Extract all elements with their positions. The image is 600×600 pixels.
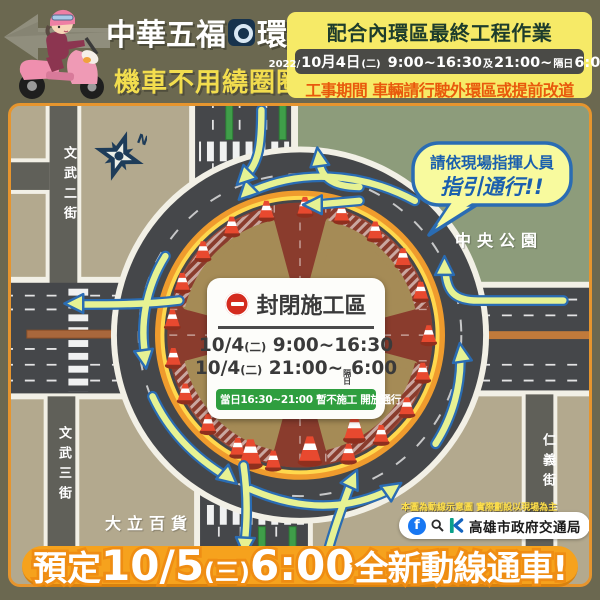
kaohsiung-k-logo-icon bbox=[449, 518, 464, 533]
sched2-date: 10/4 bbox=[195, 358, 240, 379]
bubble-line2: 指引通行!! bbox=[440, 175, 543, 199]
scooter-rider-illustration bbox=[2, 2, 114, 102]
infographic-root: 中華五福環 機車不用繞圈圈 配合內環區最終工程作業 2022/ 10月4日 (二… bbox=[0, 0, 600, 600]
notice-day: (二) bbox=[361, 55, 380, 70]
sched2-time-end: 6:00 bbox=[351, 358, 397, 379]
roundabout-glyph-icon bbox=[228, 19, 255, 46]
banner-post: 全新動線通車! bbox=[354, 549, 567, 589]
reopen-banner: 預定10/5(三)6:00全新動線通車! bbox=[22, 546, 578, 587]
park-label: 中央公園 bbox=[455, 227, 543, 251]
compass-icon: N bbox=[91, 128, 147, 184]
notice-time3: 6:00 bbox=[574, 55, 600, 71]
banner-time: 6:00 bbox=[250, 541, 354, 590]
title-part2: 環 bbox=[257, 10, 287, 54]
construction-notice-box: 配合內環區最終工程作業 2022/ 10月4日 (二) 9:00~16:30 及… bbox=[287, 12, 592, 98]
title-part1: 中華五福 bbox=[106, 10, 226, 54]
sched2-time-start: 21:00~ bbox=[269, 358, 343, 379]
sched2-nextday: 隔日 bbox=[343, 370, 351, 387]
street-label-renyi: 仁義街 bbox=[538, 433, 557, 493]
search-icon bbox=[431, 519, 444, 532]
closure-schedule-2: 10/4(二) 21:00~隔日6:00 bbox=[216, 358, 376, 385]
bubble-line1: 請依現場指揮人員 bbox=[430, 153, 555, 172]
divider bbox=[218, 326, 374, 329]
sched1-day: (二) bbox=[244, 339, 266, 355]
agency-label: 高雄市政府交通局 bbox=[469, 516, 581, 536]
no-entry-icon bbox=[225, 292, 249, 316]
sched2-day: (二) bbox=[240, 362, 262, 378]
sched1-time: 9:00~16:30 bbox=[273, 335, 393, 356]
street-label-wenwu3: 文武三街 bbox=[54, 426, 73, 506]
notice-year: 2022/ bbox=[269, 59, 300, 70]
banner-day: (三) bbox=[204, 558, 250, 586]
closure-title-row: 封閉施工區 bbox=[216, 288, 376, 320]
sched1-date: 10/4 bbox=[199, 335, 244, 356]
notice-date: 10月4日 bbox=[301, 51, 360, 72]
landmark-label: 大立百貨 bbox=[105, 510, 193, 534]
notice-time1: 9:00~16:30 bbox=[388, 55, 482, 71]
roundabout-map: N 請依現場指揮人員 指引通行!! 中央公園 文武二街 文武三街 仁義街 大立百… bbox=[8, 103, 592, 587]
banner-date: 10/5 bbox=[101, 541, 204, 590]
compass-n-label: N bbox=[135, 132, 147, 150]
banner-pre: 預定 bbox=[33, 549, 101, 589]
closure-info-box: 封閉施工區 10/4(二) 9:00~16:30 10/4(二) 21:00~隔… bbox=[207, 278, 385, 419]
notice-detour-warning: 工事期間 車輛請行駛外環區或提前改道 bbox=[295, 77, 584, 101]
reopen-banner-text: 預定10/5(三)6:00全新動線通車! bbox=[22, 545, 578, 587]
notice-datetime-bar: 2022/ 10月4日 (二) 9:00~16:30 及 21:00~隔日6:0… bbox=[295, 49, 584, 74]
street-label-wenwu2: 文武二街 bbox=[59, 146, 78, 226]
closure-open-note: 當日16:30~21:00 暫不施工 開放通行 bbox=[216, 389, 376, 410]
agency-search-pill[interactable]: f 高雄市政府交通局 bbox=[399, 512, 590, 539]
closure-title: 封閉施工區 bbox=[256, 288, 366, 320]
notice-headline: 配合內環區最終工程作業 bbox=[295, 17, 584, 46]
facebook-icon: f bbox=[408, 517, 426, 535]
notice-conjunction: 及 bbox=[483, 55, 493, 70]
closure-schedule-1: 10/4(二) 9:00~16:30 bbox=[216, 335, 376, 356]
notice-time2: 21:00~ bbox=[494, 55, 552, 71]
notice-nextday: 隔日 bbox=[553, 55, 573, 70]
